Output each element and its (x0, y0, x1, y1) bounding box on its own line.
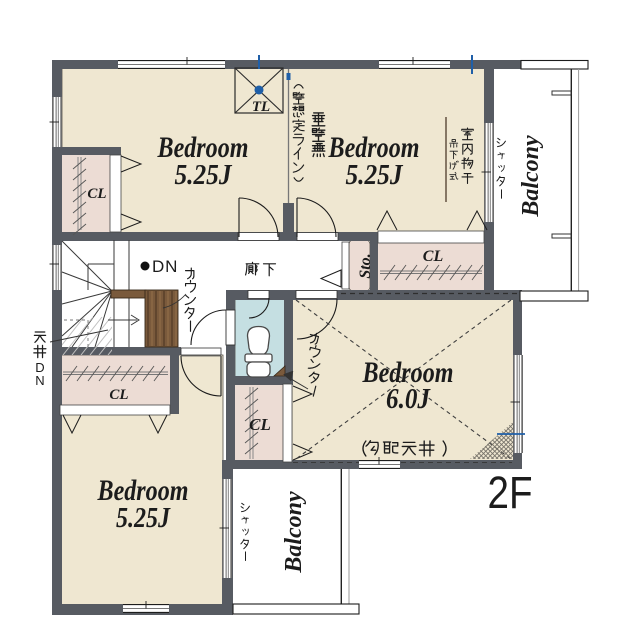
svg-text:5.25J: 5.25J (116, 503, 171, 534)
svg-text:CL: CL (87, 186, 106, 202)
svg-text:N: N (35, 373, 44, 388)
svg-text:Balcony: Balcony (518, 135, 544, 218)
svg-text:2F: 2F (488, 467, 533, 518)
svg-text:CL: CL (109, 387, 128, 403)
svg-text:TL: TL (252, 99, 270, 115)
svg-text:CL: CL (249, 415, 271, 434)
svg-text:6.0J: 6.0J (386, 384, 431, 415)
svg-text:Sto.: Sto. (357, 253, 374, 278)
svg-text:5.25J: 5.25J (175, 160, 233, 191)
svg-text:DN: DN (152, 257, 178, 276)
svg-text:Balcony: Balcony (281, 491, 307, 574)
svg-text:5.25J: 5.25J (346, 160, 404, 191)
svg-text:CL: CL (423, 248, 444, 265)
